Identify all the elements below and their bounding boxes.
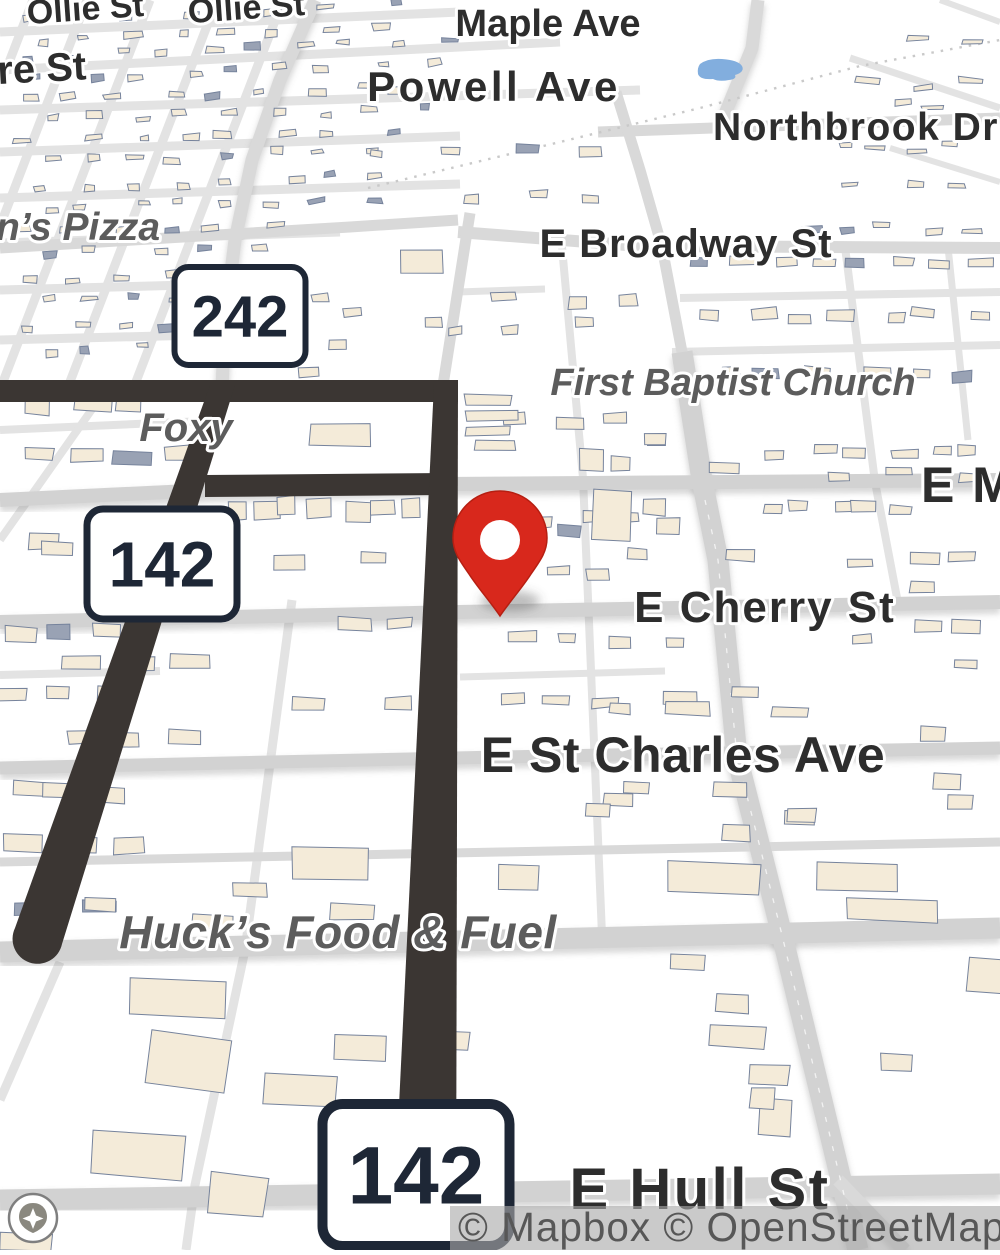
svg-text:142: 142 xyxy=(109,528,216,600)
svg-text:First Baptist Church: First Baptist Church xyxy=(550,362,915,404)
svg-text:© Mapbox © OpenStreetMap: © Mapbox © OpenStreetMap xyxy=(458,1204,1000,1250)
svg-text:Northbrook Dr: Northbrook Dr xyxy=(713,106,999,149)
svg-text:Powell Ave: Powell Ave xyxy=(367,63,621,110)
svg-text:E Cherry St: E Cherry St xyxy=(634,583,896,632)
svg-text:E Ma: E Ma xyxy=(921,457,1000,513)
svg-text:Foxy: Foxy xyxy=(139,406,234,450)
svg-text:Huck’s Food & Fuel: Huck’s Food & Fuel xyxy=(119,906,557,958)
svg-text:E Broadway St: E Broadway St xyxy=(539,222,832,266)
svg-text:n’s Pizza: n’s Pizza xyxy=(0,206,160,249)
svg-text:re St: re St xyxy=(0,44,87,93)
svg-text:242: 242 xyxy=(192,284,289,349)
svg-text:E St Charles Ave: E St Charles Ave xyxy=(481,727,885,783)
svg-text:Maple Ave: Maple Ave xyxy=(455,3,640,45)
